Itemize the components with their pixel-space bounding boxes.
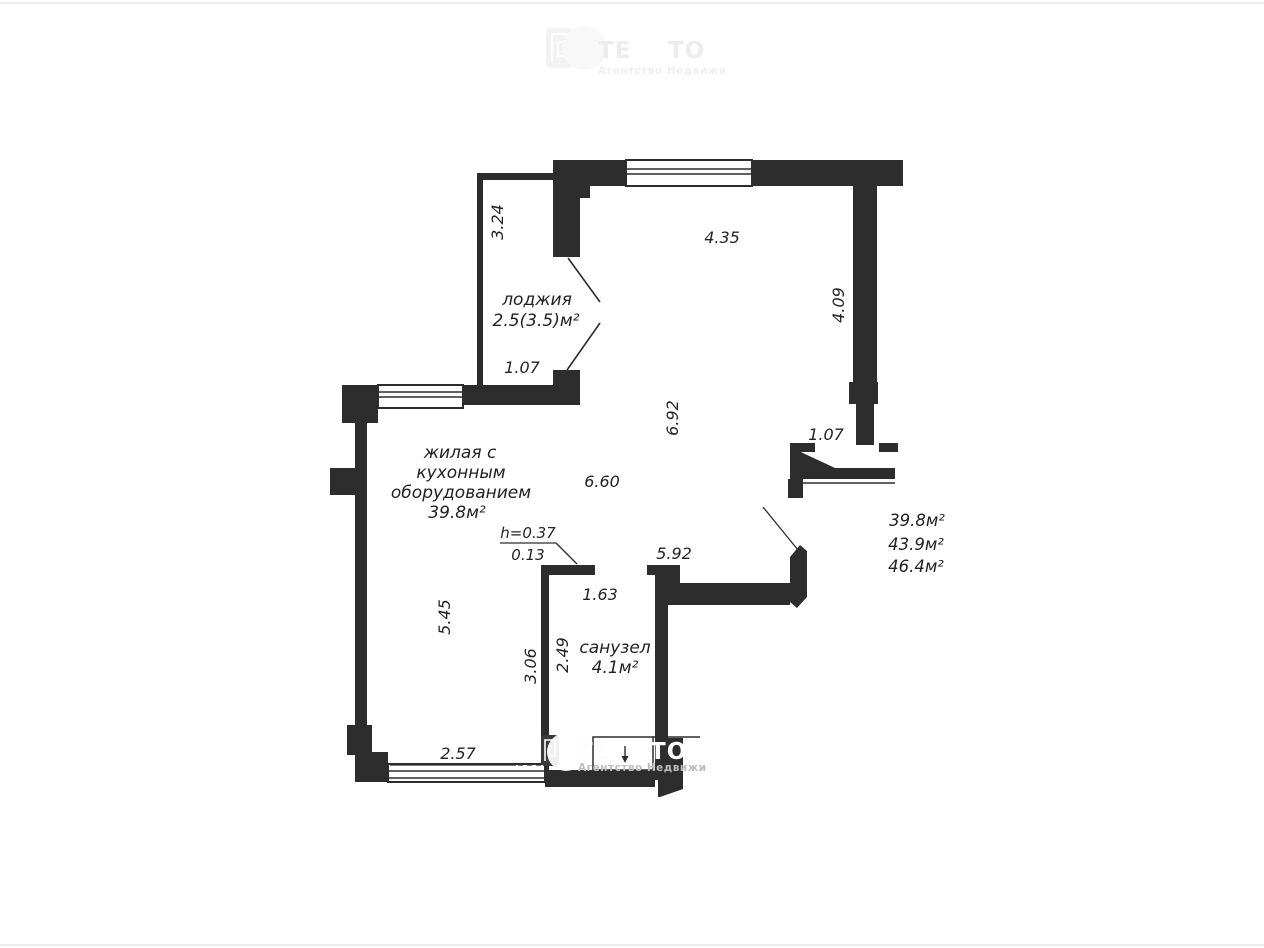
dim-loggia-length: 3.24 [488, 204, 507, 240]
wall-right-column-lower [856, 404, 874, 445]
window-bottom [388, 764, 545, 782]
wall-loggia-partition-notch [580, 173, 590, 198]
loggia-area-label: 2.5(3.5)м² [493, 311, 580, 331]
wall-right-column [853, 184, 877, 384]
step-height-label: h=0.37 [500, 524, 556, 542]
wall-bathroom-top-stub [541, 565, 595, 575]
wall-left-top-corner [342, 385, 378, 423]
watermark-subtitle: Агентство Недвижи [578, 762, 707, 774]
dim-loggia-door: 1.07 [504, 358, 540, 377]
living-name-line2: кухонным [416, 463, 505, 483]
dim-top-width: 4.35 [704, 228, 740, 247]
bottom-edge-line [0, 944, 1264, 946]
wall-south-band [680, 583, 790, 605]
watermark-brand-right: ТО [668, 38, 705, 64]
total-apartment-area: 43.9м² [888, 535, 944, 554]
living-area-label: 39.8м² [428, 503, 486, 523]
total-living-area: 39.8м² [889, 511, 945, 530]
bathroom-name-label: санузел [579, 638, 650, 658]
wall-entry-band [790, 468, 895, 479]
wall-loggia-top [477, 173, 555, 180]
wall-bottom-corner-upper [347, 725, 372, 755]
bathroom-area-label: 4.1м² [592, 658, 639, 678]
dim-entry-door: 1.07 [808, 425, 844, 444]
dim-bath-outer-height: 3.06 [521, 648, 540, 684]
dim-living-width: 6.60 [584, 472, 620, 491]
dim-right-height: 4.09 [829, 287, 848, 323]
window-top [626, 160, 752, 186]
wall-bottom-corner-lower [355, 752, 388, 782]
wall-top-right-segment [750, 160, 903, 186]
floor-plan-canvas: ТЕ ТО Агентство Недвижи [0, 0, 1264, 948]
dim-left-height: 5.45 [435, 599, 454, 635]
dim-bath-inner-height: 2.49 [553, 637, 572, 673]
wall-break-block [790, 545, 807, 608]
loggia-name-label: лоджия [501, 290, 572, 310]
wall-right-mid-box [849, 382, 878, 404]
wall-entry-left-drop [788, 479, 803, 498]
dim-bath-width: 1.63 [582, 585, 618, 604]
wall-loggia-partition-top-jamb [553, 163, 580, 257]
wall-break-leader-line [763, 507, 798, 550]
watermark-subtitle: Агентство Недвижи [598, 65, 727, 77]
wall-left [355, 423, 367, 725]
step-leader-line [556, 543, 577, 564]
dim-bottom-width: 2.57 [440, 744, 476, 763]
wall-loggia-left [477, 173, 483, 385]
door-swing-line-loggia [568, 258, 600, 302]
wall-bathroom-right-mid [655, 605, 668, 740]
living-name-line1: жилая с [423, 443, 497, 463]
total-with-loggia-area: 46.4м² [888, 557, 944, 576]
wall-bathroom-right-upper [655, 565, 680, 605]
wall-loggia-bottom-band [463, 385, 580, 405]
wall-left-pilaster [330, 468, 355, 495]
watermark-brand-left: ТЕ [598, 38, 631, 64]
step-width-label: 0.13 [511, 546, 544, 564]
watermark-top: ТЕ ТО Агентство Недвижи [546, 26, 727, 77]
dim-living-height-mid: 6.92 [663, 400, 682, 436]
wall-entry-stub-right [879, 443, 898, 452]
top-edge-line [0, 2, 1264, 4]
wall-bathroom-door-jamb [647, 565, 657, 575]
dim-south-width: 5.92 [656, 544, 692, 563]
wall-bathroom-right-foot [658, 780, 683, 797]
living-name-line3: оборудованием [391, 483, 531, 503]
